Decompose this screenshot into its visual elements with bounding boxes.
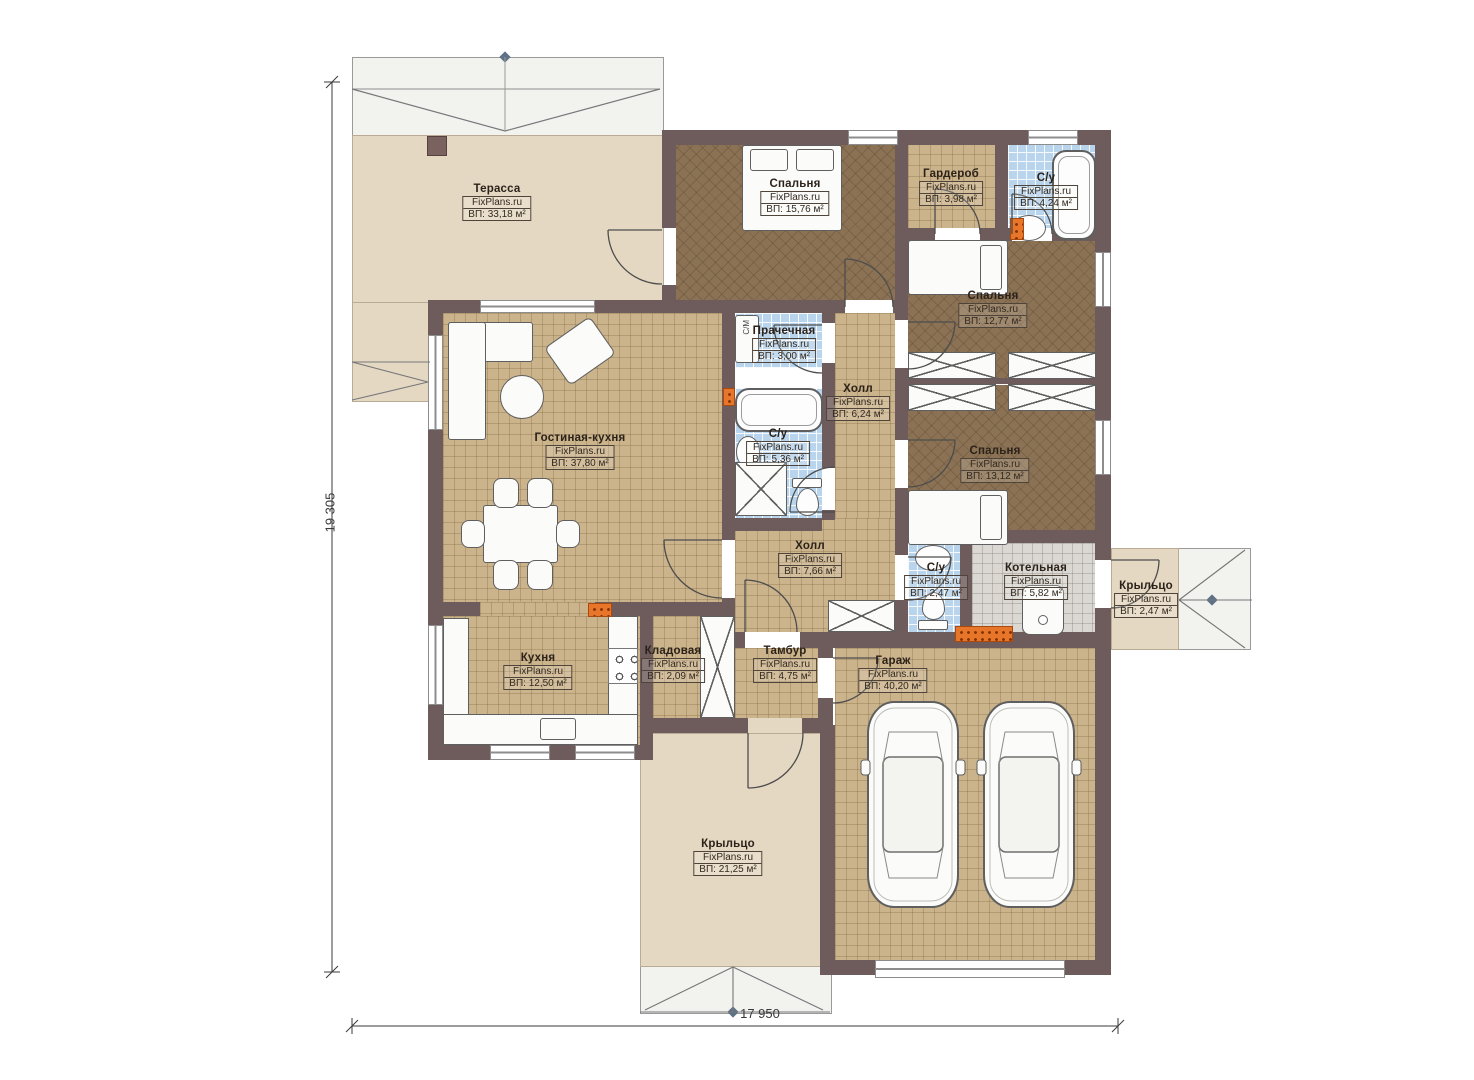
chair (556, 520, 580, 548)
window (1028, 130, 1078, 145)
room-label-bath1: С/у FixPlans.ruВП: 4,24 м² (1014, 172, 1078, 211)
radiator (1010, 218, 1024, 240)
room-label-terrace: Терасса FixPlans.ruВП: 33,18 м² (462, 183, 531, 222)
wall (802, 718, 830, 733)
room-label-laundry: Прачечная FixPlans.ruВП: 3,00 м² (752, 325, 816, 364)
wall (428, 602, 480, 616)
bed-pillow (980, 245, 1002, 290)
wall (595, 602, 735, 616)
room-label-wardrobe: Гардероб FixPlans.ruВП: 3,98 м² (919, 168, 983, 207)
room-label-living: Гостиная-кухня FixPlans.ruВП: 37,80 м² (535, 432, 626, 471)
window (575, 745, 635, 760)
wall (428, 616, 443, 625)
room-label-garage: Гараж FixPlans.ruВП: 40,20 м² (858, 655, 927, 694)
room-label-boiler: Котельная FixPlans.ruВП: 5,82 м² (1004, 562, 1068, 601)
wall (822, 510, 835, 520)
window (1095, 252, 1111, 307)
closet (1008, 352, 1096, 379)
wall (722, 313, 735, 540)
room-label-hall1: Холл FixPlans.ruВП: 6,24 м² (826, 383, 890, 422)
floor-plan-canvas: С/М (0, 0, 1474, 1080)
dining-table (483, 505, 558, 563)
wall (550, 745, 575, 760)
chair (527, 560, 553, 590)
sofa (448, 322, 486, 440)
window (480, 300, 595, 313)
coffee-table (500, 375, 544, 419)
wall (895, 143, 908, 320)
wall (1065, 960, 1111, 975)
wall (1095, 130, 1111, 252)
wall (662, 130, 848, 145)
dimension-bottom: 17 950 (700, 1006, 820, 1021)
wall (835, 960, 875, 975)
chair (493, 478, 519, 508)
closet (828, 600, 895, 632)
vestibule-door-pass (748, 718, 802, 733)
chair (461, 520, 485, 548)
wall (428, 430, 443, 602)
wall (1095, 645, 1111, 975)
toilet (918, 620, 948, 630)
chair (527, 478, 553, 508)
wall (898, 130, 1028, 145)
closet (908, 384, 996, 411)
room-label-kitchen: Кухня FixPlans.ruВП: 12,50 м² (503, 652, 572, 691)
living-floor-pass (480, 602, 595, 616)
garage-door-opening (875, 960, 1065, 978)
washing-machine-label: С/М (742, 320, 751, 335)
closet (908, 352, 996, 379)
wall (995, 143, 1008, 228)
bed-pillow (980, 495, 1002, 540)
wall (1095, 475, 1111, 560)
wall (662, 130, 676, 228)
radiator (588, 603, 612, 617)
room-label-hall2: Холл FixPlans.ruВП: 7,66 м² (778, 540, 842, 579)
terrace-floor-left-strip (352, 302, 432, 402)
window (428, 625, 443, 705)
closet (1008, 384, 1096, 411)
wall (895, 368, 908, 440)
toilet (792, 478, 822, 488)
closet (700, 616, 735, 718)
stove (608, 648, 638, 684)
bed-pillow (750, 149, 788, 171)
room-label-bedroom2: Спальня FixPlans.ruВП: 12,77 м² (958, 290, 1027, 329)
wall (645, 718, 748, 733)
terrace-post (427, 136, 447, 156)
bed-pillow (796, 149, 834, 171)
window (1095, 420, 1111, 475)
room-label-bath2: С/у FixPlans.ruВП: 5,36 м² (746, 428, 810, 467)
room-label-bedroom1: Спальня FixPlans.ruВП: 15,76 м² (760, 178, 829, 217)
room-label-pantry: Кладовая FixPlans.ruВП: 2,09 м² (641, 645, 705, 684)
wall (820, 725, 835, 975)
wall (818, 648, 833, 658)
wall (428, 705, 443, 760)
window (848, 130, 898, 145)
garage-floor (835, 648, 1095, 960)
room-label-porch-bottom: Крыльцо FixPlans.ruВП: 21,25 м² (693, 838, 762, 877)
radiator (723, 388, 735, 406)
kitchen-sink (540, 718, 576, 740)
wall (640, 718, 653, 760)
window (428, 335, 443, 430)
wall (428, 300, 480, 313)
room-label-porch-right: Крыльцо FixPlans.ruВП: 2,47 м² (1114, 580, 1178, 619)
chair (493, 560, 519, 590)
wall (822, 313, 835, 323)
boiler-gauge (1038, 615, 1048, 625)
dimension-left: 19 305 (323, 483, 338, 543)
terrace-roof-overhang (352, 57, 664, 137)
wall (735, 518, 822, 531)
room-label-bath3: С/у FixPlans.ruВП: 2,47 м² (904, 562, 968, 601)
wall (1095, 307, 1111, 420)
shower (735, 462, 787, 516)
room-label-vestibule: Тамбур FixPlans.ruВП: 4,75 м² (753, 645, 817, 684)
room-label-bedroom3: Спальня FixPlans.ruВП: 13,12 м² (960, 445, 1029, 484)
wall (895, 488, 908, 555)
bathtub (735, 388, 823, 432)
toilet-bowl (796, 488, 819, 516)
wall (662, 300, 845, 313)
radiator (955, 626, 1013, 642)
window (490, 745, 550, 760)
